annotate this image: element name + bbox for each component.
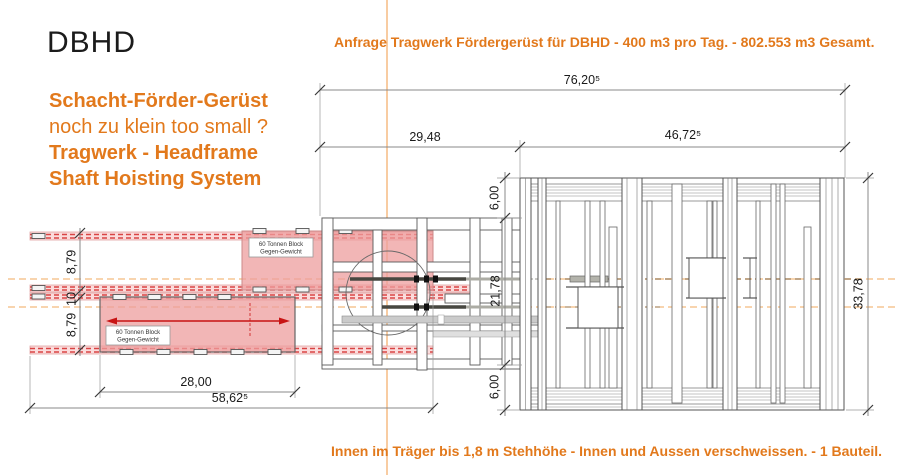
- main-frame: [520, 178, 844, 410]
- intro-text: Schacht-Förder-Gerüst noch zu klein too …: [49, 88, 268, 192]
- dim-rail-gap: 10: [64, 292, 78, 306]
- dim-overall-left: 58,62⁵: [212, 391, 248, 405]
- counterweight-block-upper: 60 Tonnen Block Gegen-Gewicht: [242, 229, 433, 293]
- footer-note: Innen im Träger bis 1,8 m Stehhöhe - Inn…: [331, 443, 891, 459]
- header-note: Anfrage Tragwerk Fördergerüst für DBHD -…: [334, 34, 894, 50]
- dim-right-span: 46,72⁵: [665, 128, 701, 142]
- dim-rail-bottom: 8,79: [64, 313, 78, 337]
- technical-drawing: 60 Tonnen Block Gegen-Gewicht 60 Tonnen …: [0, 0, 900, 475]
- dim-rail-top: 8,79: [64, 250, 78, 274]
- drawing-sheet: 60 Tonnen Block Gegen-Gewicht 60 Tonnen …: [0, 0, 900, 475]
- svg-text:Gegen-Gewicht: Gegen-Gewicht: [117, 338, 159, 344]
- dim-frame-mid: 21,78: [488, 275, 502, 306]
- counterweight-label: 60 Tonnen Block: [259, 242, 304, 248]
- logo-dbhd: DBHD: [47, 26, 136, 60]
- dim-frame-top: 6,00: [487, 186, 501, 210]
- intro-line-2: noch zu klein too small ?: [49, 114, 268, 140]
- svg-text:Gegen-Gewicht: Gegen-Gewicht: [260, 250, 302, 256]
- intro-line-4: Shaft Hoisting System: [49, 166, 268, 192]
- dim-left-span: 29,48: [409, 130, 440, 144]
- dim-frame-total: 33,78: [851, 278, 865, 309]
- dim-block-length: 28,00: [180, 375, 211, 389]
- dim-total-width: 76,20⁵: [564, 73, 600, 87]
- intro-line-1: Schacht-Förder-Gerüst: [49, 88, 268, 114]
- intro-line-3: Tragwerk - Headframe: [49, 140, 268, 166]
- counterweight-label: 60 Tonnen Block: [116, 330, 161, 336]
- dim-frame-bottom: 6,00: [487, 375, 501, 399]
- counterweight-block-lower: 60 Tonnen Block Gegen-Gewicht: [100, 295, 295, 355]
